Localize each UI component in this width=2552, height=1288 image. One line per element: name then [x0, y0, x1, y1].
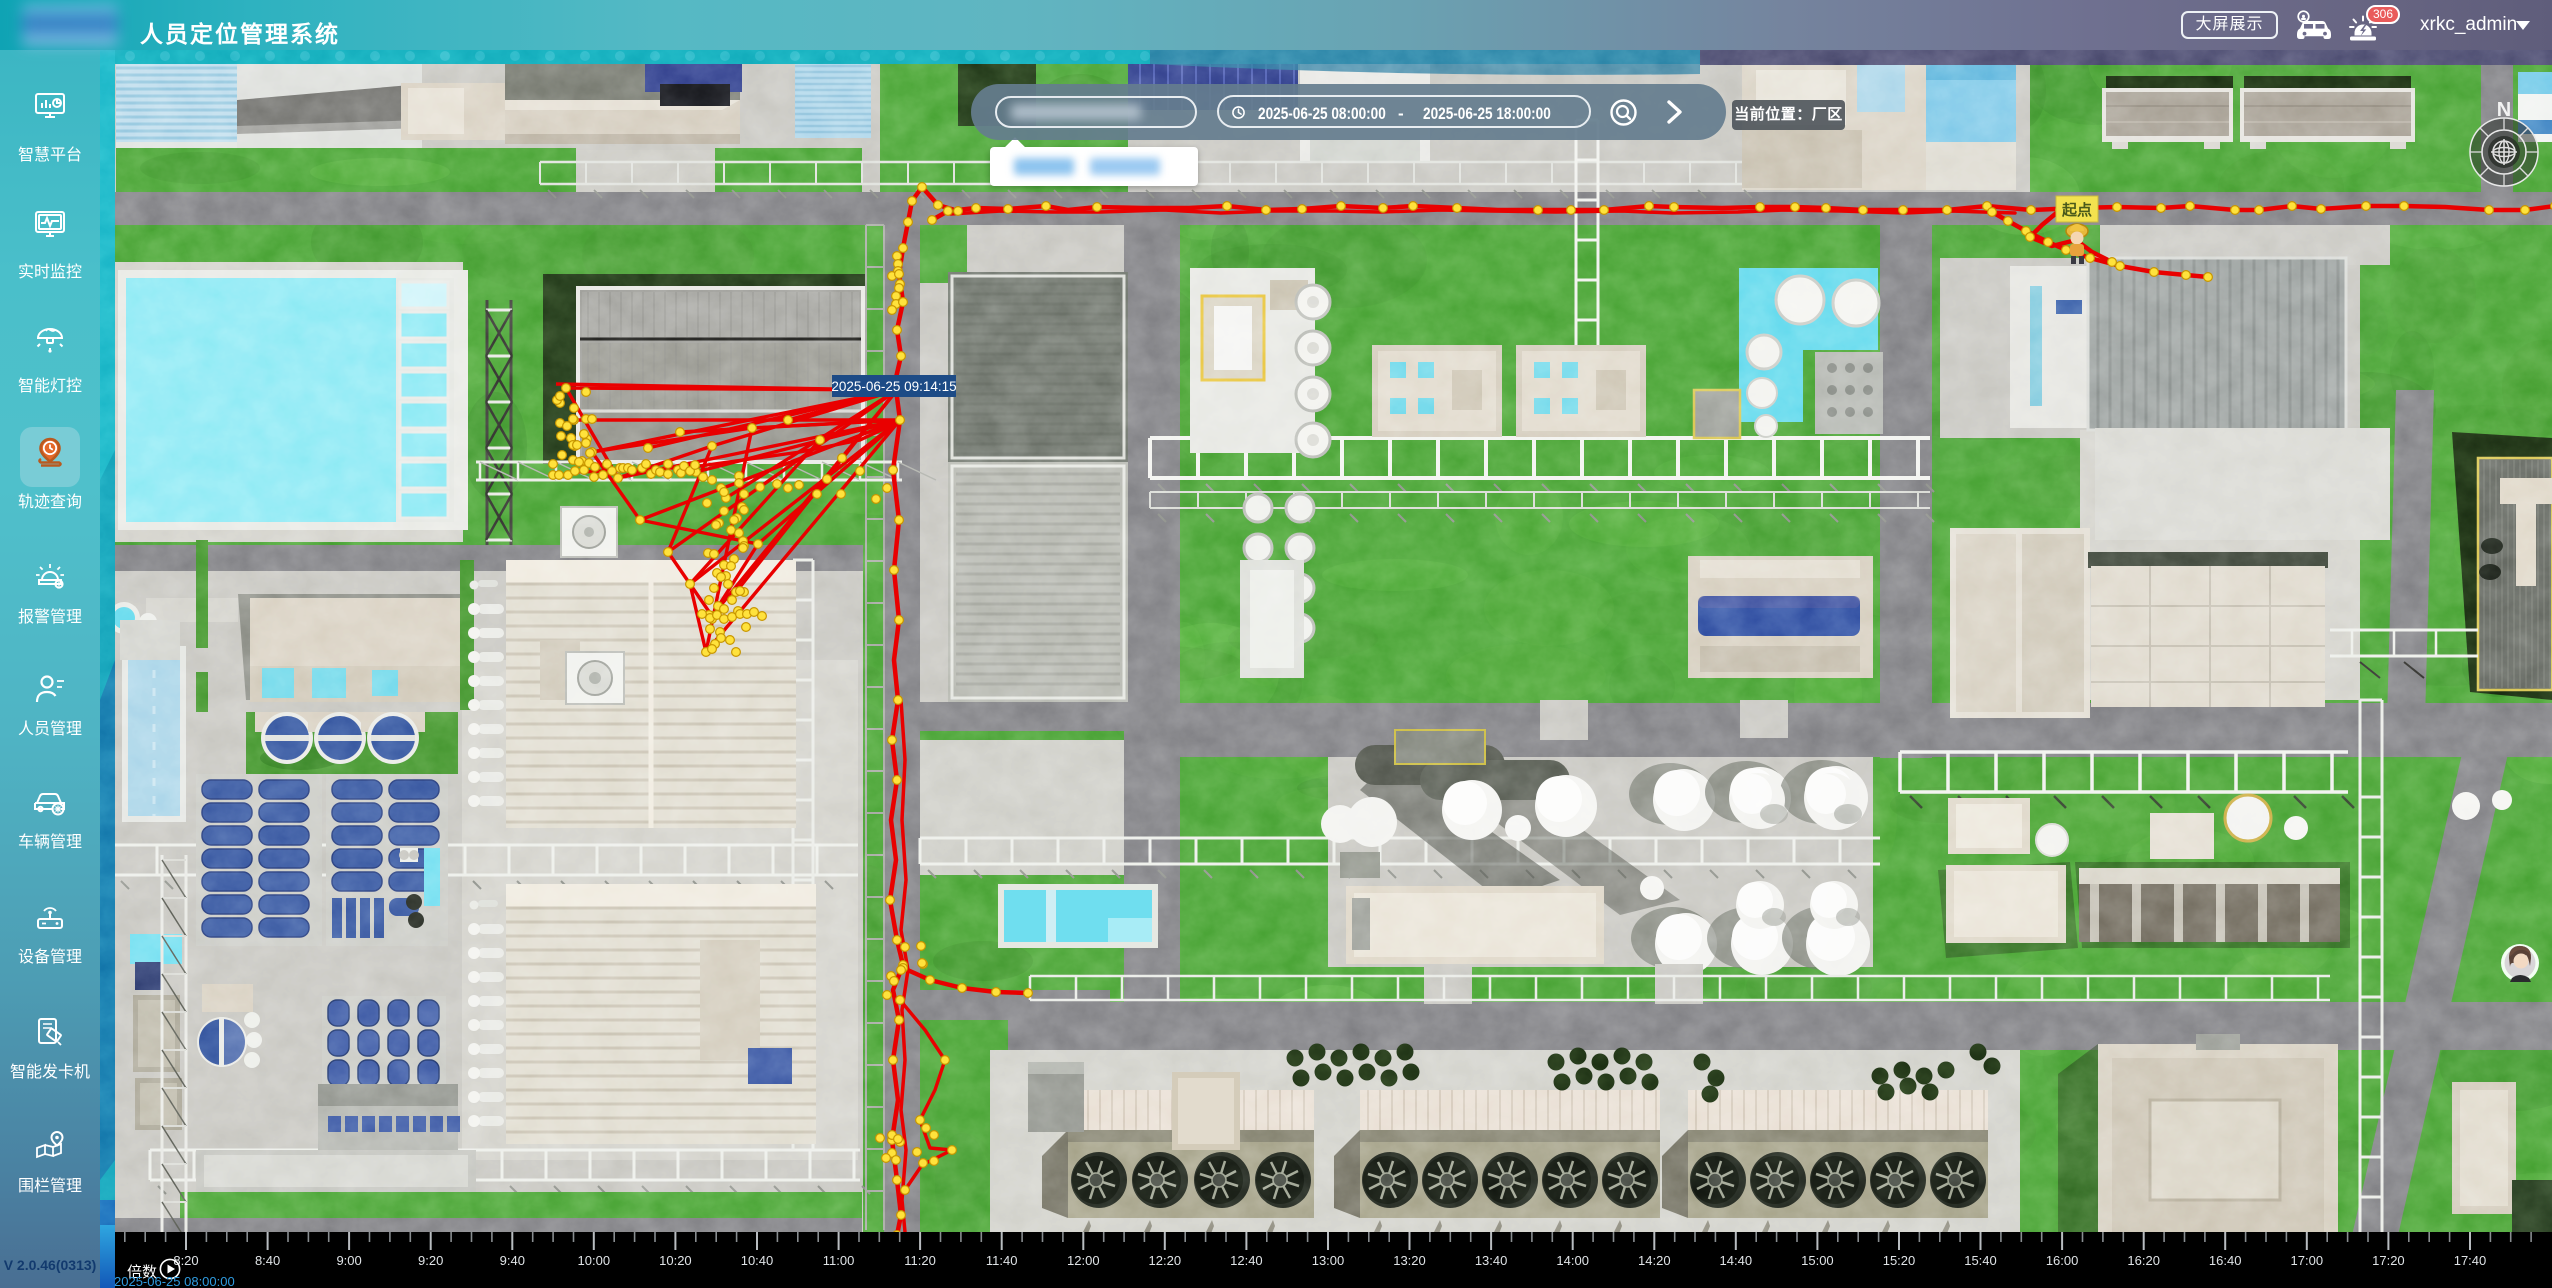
svg-text:12:40: 12:40: [1230, 1253, 1263, 1268]
svg-text:10:00: 10:00: [578, 1253, 611, 1268]
svg-text:10:40: 10:40: [741, 1253, 774, 1268]
svg-text:11:20: 11:20: [904, 1253, 936, 1268]
svg-text:起点: 起点: [2061, 202, 2092, 219]
svg-text:15:00: 15:00: [1801, 1253, 1834, 1268]
svg-text:13:20: 13:20: [1393, 1253, 1426, 1268]
svg-text:14:20: 14:20: [1638, 1253, 1671, 1268]
svg-text:14:00: 14:00: [1556, 1253, 1589, 1268]
svg-text:12:20: 12:20: [1149, 1253, 1182, 1268]
svg-text:16:20: 16:20: [2127, 1253, 2160, 1268]
svg-text:9:20: 9:20: [418, 1253, 443, 1268]
svg-text:10:20: 10:20: [659, 1253, 692, 1268]
svg-text:8:40: 8:40: [255, 1253, 280, 1268]
svg-text:11:00: 11:00: [823, 1253, 855, 1268]
svg-text:15:40: 15:40: [1964, 1253, 1997, 1268]
svg-text:2025-06-25 09:14:15: 2025-06-25 09:14:15: [831, 379, 956, 394]
svg-text:9:40: 9:40: [500, 1253, 525, 1268]
svg-text:17:20: 17:20: [2372, 1253, 2405, 1268]
svg-text:16:00: 16:00: [2046, 1253, 2079, 1268]
svg-text:17:40: 17:40: [2454, 1253, 2487, 1268]
svg-text:12:00: 12:00: [1067, 1253, 1100, 1268]
svg-text:11:40: 11:40: [986, 1253, 1018, 1268]
svg-text:9:00: 9:00: [336, 1253, 361, 1268]
svg-text:13:00: 13:00: [1312, 1253, 1345, 1268]
svg-text:13:40: 13:40: [1475, 1253, 1508, 1268]
svg-text:14:40: 14:40: [1720, 1253, 1753, 1268]
svg-text:16:40: 16:40: [2209, 1253, 2242, 1268]
svg-text:17:00: 17:00: [2291, 1253, 2324, 1268]
svg-text:15:20: 15:20: [1883, 1253, 1916, 1268]
